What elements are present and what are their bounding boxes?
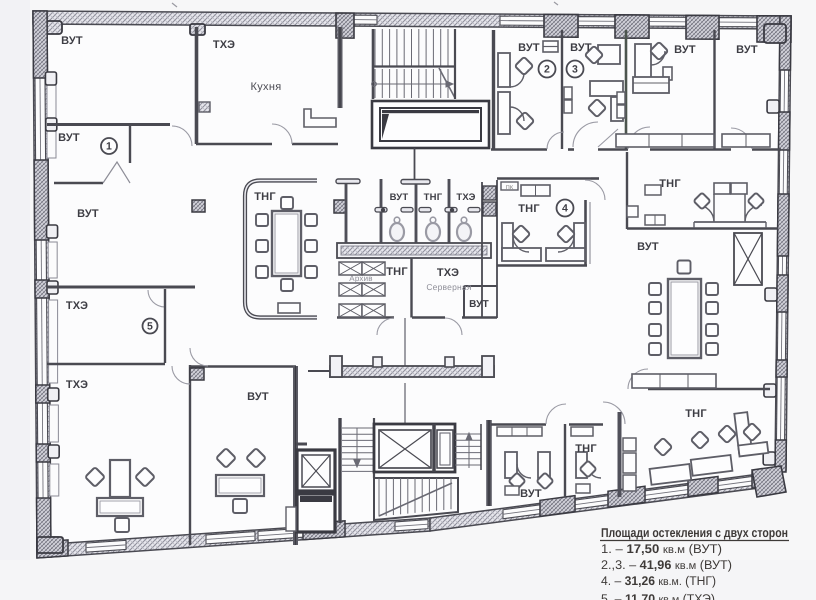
svg-text:ТХЭ: ТХЭ [66,300,88,312]
svg-text:ТХЭ: ТХЭ [66,379,88,391]
svg-text:4. – 31,26 кв.м. (ТНГ): 4. – 31,26 кв.м. (ТНГ) [601,574,716,588]
svg-text:1. – 17,50 кв.м (ВУТ): 1. – 17,50 кв.м (ВУТ) [601,542,722,556]
svg-text:2.,3. – 41,96 кв.м (ВУТ): 2.,3. – 41,96 кв.м (ВУТ) [601,558,732,572]
svg-text:ВУТ: ВУТ [58,132,80,144]
svg-text:ВУТ: ВУТ [736,44,758,56]
svg-text:ВУТ: ВУТ [637,241,659,253]
svg-text:4: 4 [562,203,568,215]
svg-text:ТХЭ: ТХЭ [456,192,475,203]
svg-text:ВУТ: ВУТ [61,35,83,47]
svg-text:ТНГ: ТНГ [518,203,540,215]
svg-text:ВУТ: ВУТ [247,391,269,403]
svg-text:ТНГ: ТНГ [685,408,707,420]
svg-text:5: 5 [147,321,153,333]
svg-text:Кухня: Кухня [251,81,282,93]
svg-text:ПК: ПК [506,185,514,191]
svg-text:ТХЭ: ТХЭ [213,39,235,51]
svg-text:ВУТ: ВУТ [570,42,592,54]
svg-text:2: 2 [544,64,550,76]
svg-text:Архив: Архив [349,274,372,283]
svg-text:ТНГ: ТНГ [424,192,443,203]
svg-text:ВУТ: ВУТ [518,42,540,54]
svg-text:ТНГ: ТНГ [386,266,408,278]
svg-text:Серверная: Серверная [426,282,471,292]
svg-text:ТНГ: ТНГ [659,178,681,190]
svg-text:3: 3 [572,64,578,76]
svg-text:ВУТ: ВУТ [390,192,409,203]
svg-text:ТНГ: ТНГ [254,191,276,203]
svg-text:ВУТ: ВУТ [469,299,489,310]
svg-text:5. – 11,70 кв.м (ТХЭ): 5. – 11,70 кв.м (ТХЭ) [601,592,715,600]
svg-text:ВУТ: ВУТ [674,44,696,56]
svg-text:Площади остекления с двух стор: Площади остекления с двух сторон [601,525,788,540]
svg-text:ТНГ: ТНГ [575,443,597,455]
svg-text:ВУТ: ВУТ [520,488,542,500]
svg-text:1: 1 [106,141,112,153]
svg-text:ВУТ: ВУТ [77,208,99,220]
svg-text:ТХЭ: ТХЭ [437,267,459,279]
